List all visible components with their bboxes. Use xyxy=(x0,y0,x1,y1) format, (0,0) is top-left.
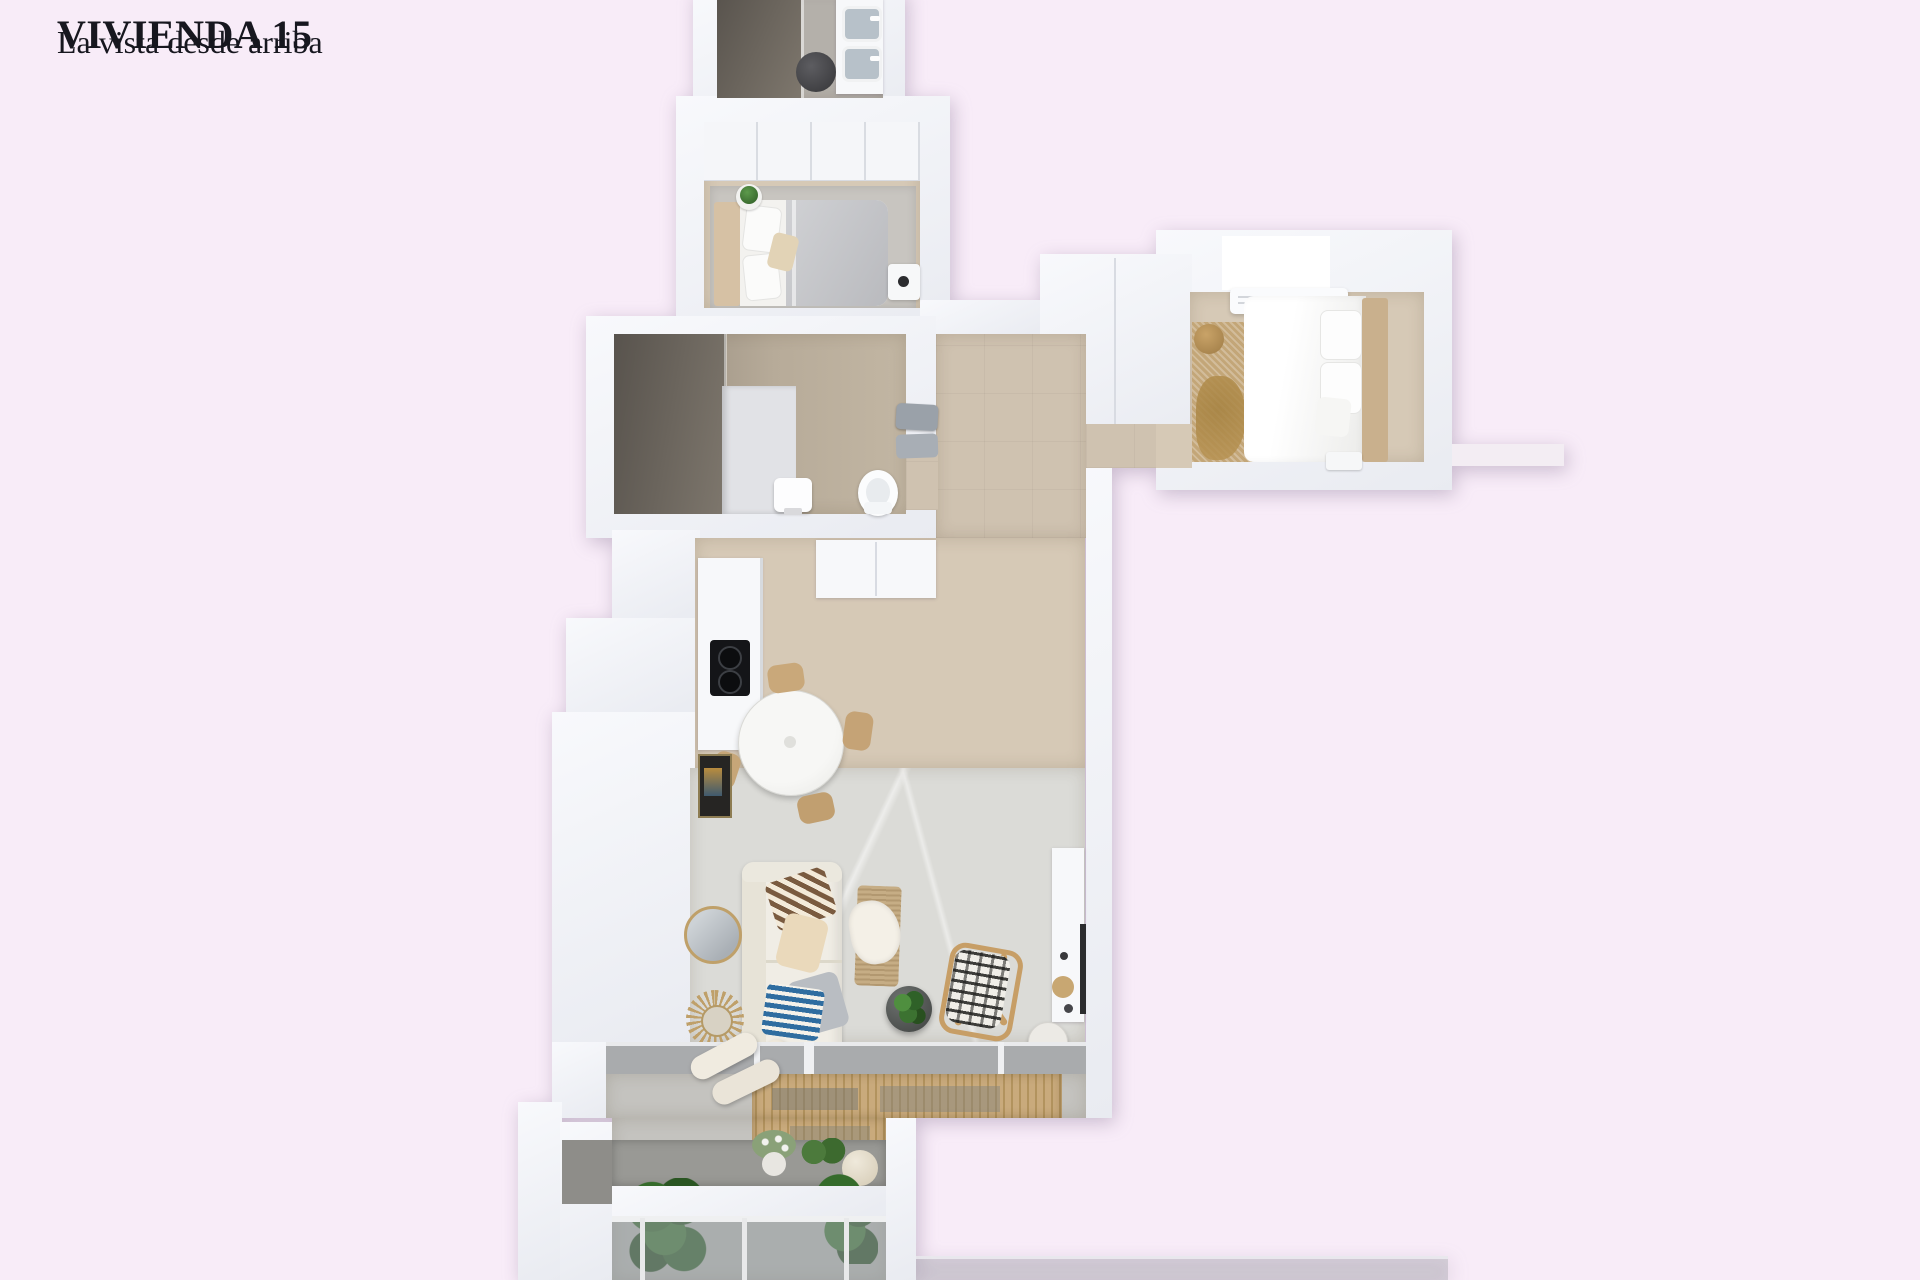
pedestal-sink xyxy=(774,478,812,512)
wood-stool xyxy=(1052,976,1074,998)
wall-art-print xyxy=(704,768,722,796)
shower-top xyxy=(717,0,801,98)
toilet-seat xyxy=(864,502,892,514)
skylight-bedroom-2 xyxy=(1222,236,1330,290)
coffee-table-plant xyxy=(888,988,930,1030)
headboard-bed-1 xyxy=(714,202,740,306)
wall-left-upper xyxy=(612,530,700,618)
herb-plants xyxy=(800,1138,846,1166)
wall-right-living xyxy=(1086,446,1112,1118)
table-center xyxy=(784,736,796,748)
cabinet-seam xyxy=(875,542,877,596)
wall-left-mid xyxy=(566,618,700,712)
terrace-parapet xyxy=(612,1186,886,1218)
window-wall xyxy=(606,1042,1086,1074)
pillow-bed-2-c xyxy=(1314,396,1352,437)
window-stile-3 xyxy=(998,1042,1004,1074)
window-frame-top xyxy=(606,1042,1086,1046)
starburst-mirror-center xyxy=(701,1005,733,1037)
wall-terrace-right xyxy=(886,1118,916,1280)
towel-2 xyxy=(896,433,939,458)
cushion-blue-stripe xyxy=(761,982,826,1042)
sink-basin-1 xyxy=(842,6,882,42)
burner-2 xyxy=(718,670,742,694)
console-item-2 xyxy=(1064,1004,1073,1013)
glass-railing-right xyxy=(916,1256,1448,1280)
bedroom-2-door-opening xyxy=(1156,424,1192,468)
nightstand-bedroom-2 xyxy=(1326,452,1362,470)
tv xyxy=(1080,924,1086,1014)
speaker-on-nightstand xyxy=(898,276,909,287)
closet-door-seam xyxy=(1114,258,1116,442)
hallway-floor xyxy=(936,334,1086,538)
sink-basin-2 xyxy=(842,46,882,82)
page: VIVIENDA 15 La vista desde arriba xyxy=(0,0,1920,1280)
wall-terrace-step-outer xyxy=(518,1102,562,1280)
duvet-bed-1 xyxy=(786,200,888,306)
round-mirror xyxy=(684,906,742,964)
dining-chair-east xyxy=(841,710,874,752)
ledge-right xyxy=(1452,444,1564,466)
laundry-basket xyxy=(796,52,836,92)
wardrobe-bedroom-1 xyxy=(704,122,920,181)
apartment-floorplan xyxy=(0,0,1920,1280)
hall-connector-floor xyxy=(1086,424,1156,468)
railing-post-1 xyxy=(640,1218,645,1280)
railing-post-2 xyxy=(742,1218,747,1280)
wall-connector xyxy=(920,300,1042,336)
jute-pouf-bedroom-2 xyxy=(1194,324,1224,354)
mat-shadow-patch-2 xyxy=(880,1086,1000,1112)
railing-post-3 xyxy=(844,1218,849,1280)
headboard-bed-2 xyxy=(1362,298,1388,462)
lavender-pot xyxy=(762,1152,786,1176)
dining-chair-north xyxy=(766,662,806,695)
shower-2 xyxy=(614,334,726,514)
plant-bedroom-1 xyxy=(740,186,758,204)
wall-left-lower xyxy=(552,712,700,1042)
burner-1 xyxy=(718,646,742,670)
faucet-1 xyxy=(870,16,880,21)
sink-pedestal-base xyxy=(784,508,802,515)
console-item-1 xyxy=(1060,952,1068,960)
pillow-bed-2-a xyxy=(1320,310,1362,360)
bathroom-2-door-opening xyxy=(906,452,938,510)
window-stile-2 xyxy=(804,1042,814,1074)
mat-shadow-patch-1 xyxy=(772,1088,858,1110)
faucet-2 xyxy=(870,56,880,61)
terrace-recess xyxy=(562,1140,612,1204)
towel-1 xyxy=(895,403,938,431)
